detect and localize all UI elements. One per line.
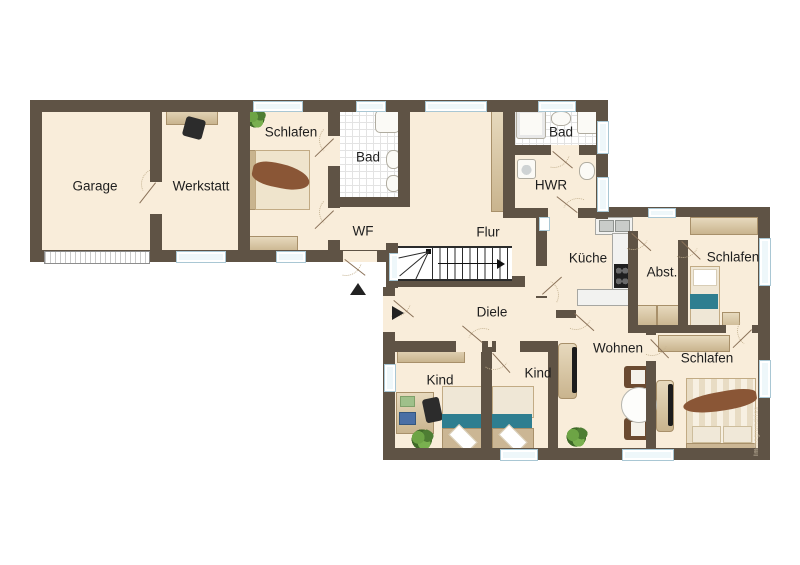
window xyxy=(622,449,674,461)
shower xyxy=(375,110,400,133)
window xyxy=(597,177,609,212)
tv-icon xyxy=(668,384,673,426)
wall xyxy=(596,207,770,217)
chair-cushion xyxy=(631,370,645,384)
wall xyxy=(398,108,410,207)
room-label-garage: Garage xyxy=(72,179,117,194)
window xyxy=(759,360,771,398)
tv-icon xyxy=(572,347,577,393)
plant-icon xyxy=(566,427,589,447)
door-gap xyxy=(456,341,482,352)
room-label-flur: Flur xyxy=(476,225,499,240)
sideboard xyxy=(658,335,730,352)
kitchen-counter xyxy=(577,289,632,306)
room-label-diele: Diele xyxy=(477,305,508,320)
bath-cabinet xyxy=(577,109,598,134)
window xyxy=(384,364,396,392)
room-label-kind1: Kind xyxy=(426,373,453,388)
wall xyxy=(238,108,250,256)
stair-arrow-icon xyxy=(497,259,505,269)
bed-pillow xyxy=(692,426,721,443)
window xyxy=(356,101,386,112)
wall xyxy=(383,448,770,460)
paper xyxy=(400,396,415,407)
room-label-schlafen3: Schlafen xyxy=(681,351,734,366)
watermark-text: Immogrundriss xyxy=(753,394,765,456)
room-label-wohnen: Wohnen xyxy=(593,341,643,356)
room-label-bad2: Bad xyxy=(549,125,573,140)
wall-niche xyxy=(539,217,550,231)
window xyxy=(500,449,538,461)
wall xyxy=(503,108,515,218)
bench xyxy=(657,305,680,327)
sink xyxy=(579,162,595,180)
window xyxy=(276,251,306,263)
door-gap xyxy=(343,251,377,262)
staircase xyxy=(398,246,512,281)
window xyxy=(176,251,226,263)
bed-pillow xyxy=(723,426,752,443)
room-label-bad1: Bad xyxy=(356,150,380,165)
room-label-abst: Abst. xyxy=(647,265,678,280)
garage-door xyxy=(44,251,150,264)
window xyxy=(759,238,771,286)
bed-blanket-teal xyxy=(492,414,532,428)
entrance-arrow-right-icon xyxy=(392,306,404,320)
window xyxy=(538,101,576,112)
room-label-schlafen2: Schlafen xyxy=(707,250,760,265)
plant-icon xyxy=(411,429,435,450)
stair-direction-line xyxy=(438,263,498,264)
wall xyxy=(548,341,558,458)
bed-blanket-teal xyxy=(442,414,482,428)
entrance-arrow-up-icon xyxy=(350,283,366,295)
wall xyxy=(30,100,42,262)
window xyxy=(648,208,676,218)
wall xyxy=(30,100,608,112)
shower xyxy=(516,109,546,139)
laptop xyxy=(399,412,416,425)
window xyxy=(253,101,303,112)
window xyxy=(425,101,487,112)
room-label-werkstatt: Werkstatt xyxy=(173,179,230,194)
window xyxy=(597,121,609,154)
bed-pillow xyxy=(693,269,717,286)
door-gap xyxy=(496,341,520,352)
room-label-wf: WF xyxy=(353,224,374,239)
chair-cushion xyxy=(631,422,645,436)
room-label-kueche: Küche xyxy=(569,251,607,266)
room-label-kind2: Kind xyxy=(524,366,551,381)
kitchen-sink-basin xyxy=(599,220,614,232)
washing-machine xyxy=(517,159,536,179)
floorplan: Immogrundriss Garage Werkstatt Schlafen … xyxy=(0,0,800,565)
bed-blanket-teal xyxy=(690,294,718,309)
room-label-schlafen1: Schlafen xyxy=(265,125,318,140)
wardrobe xyxy=(690,217,758,235)
room-label-hwr: HWR xyxy=(535,178,567,193)
wall xyxy=(556,310,576,318)
